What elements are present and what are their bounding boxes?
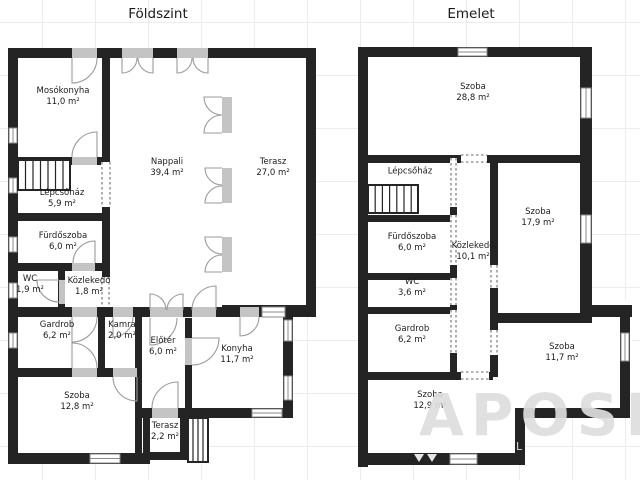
- watermark-fragment: [0, 0, 640, 480]
- floorplan-canvas: Földszint Emelet Mosókonyha11,0 m²Nappal…: [0, 0, 640, 480]
